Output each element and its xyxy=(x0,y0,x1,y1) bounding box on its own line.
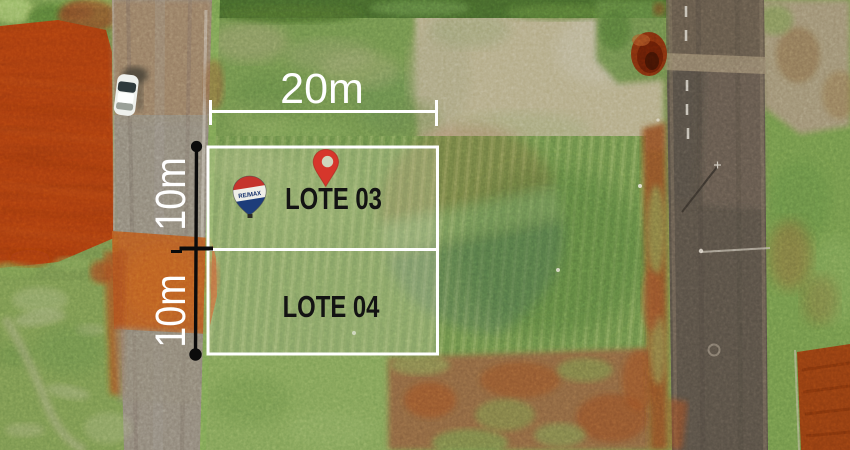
svg-text:10m: 10m xyxy=(146,274,195,348)
svg-text:20m: 20m xyxy=(280,65,364,113)
svg-text:LOTE 03: LOTE 03 xyxy=(285,181,382,216)
svg-text:10m: 10m xyxy=(146,157,195,231)
svg-text:LOTE 04: LOTE 04 xyxy=(283,289,380,324)
